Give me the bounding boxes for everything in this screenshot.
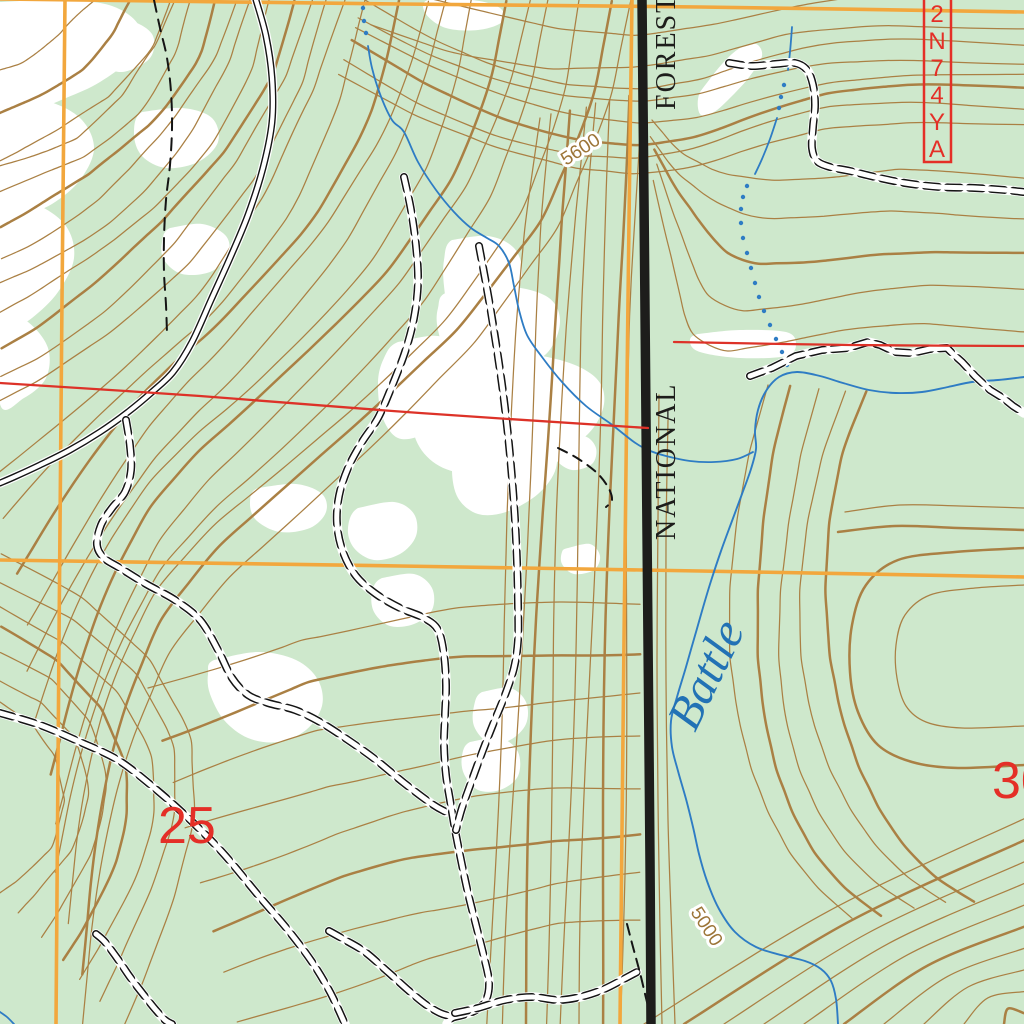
forest-boundary-label-upper: FOREST — [651, 0, 682, 110]
intermittent-stream-dot — [762, 309, 766, 313]
topo-map-viewport: 5600 5000 FOREST NATIONAL Battle 25 30 2… — [0, 0, 1024, 1024]
forest-route-char: N — [928, 28, 945, 55]
forest-route-char: 4 — [930, 82, 943, 109]
intermittent-stream-dot — [745, 251, 749, 255]
intermittent-stream-dot — [753, 281, 757, 285]
forest-route-char: 2 — [930, 1, 943, 28]
intermittent-stream-dot — [362, 19, 366, 23]
intermittent-stream-dot — [774, 337, 778, 341]
forest-route-char: A — [929, 136, 945, 163]
forest-boundary-label-lower: NATIONAL — [651, 382, 682, 540]
intermittent-stream-dot — [361, 6, 365, 10]
intermittent-stream-dot — [739, 221, 743, 225]
intermittent-stream-dot — [779, 95, 783, 99]
section-number-30: 30 — [992, 752, 1024, 810]
topo-map: 5600 5000 FOREST NATIONAL Battle 25 30 2… — [0, 0, 1024, 1024]
forest-route-char: Y — [929, 109, 945, 136]
intermittent-stream-dot — [741, 236, 745, 240]
intermittent-stream-dot — [777, 106, 781, 110]
section-number-25: 25 — [158, 797, 216, 855]
intermittent-stream-dot — [745, 184, 749, 188]
intermittent-stream-dot — [749, 266, 753, 270]
intermittent-stream-dot — [782, 83, 786, 87]
intermittent-stream-dot — [780, 350, 784, 354]
intermittent-stream-dot — [364, 31, 368, 35]
intermittent-stream-dot — [757, 295, 761, 299]
intermittent-stream-dot — [741, 195, 745, 199]
intermittent-stream-dot — [739, 207, 743, 211]
intermittent-stream-dot — [768, 323, 772, 327]
forest-route-char: 7 — [930, 55, 943, 82]
